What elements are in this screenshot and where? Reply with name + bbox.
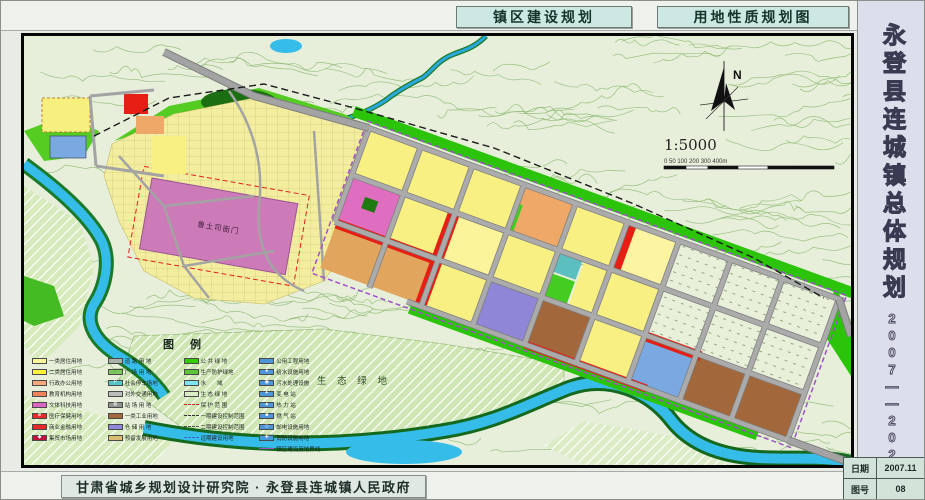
legend-item: 保 护 范 围 (184, 399, 257, 410)
legend-label: 远期建设用地 (201, 434, 234, 442)
legend-item: 道 路 用 地 (108, 355, 181, 366)
legend-item: 文体科技用地 (32, 399, 105, 410)
legend-symbol-icon: ■ (265, 413, 268, 418)
legend-label: 公 共 绿 地 (201, 357, 228, 365)
plan-sheet: 镇区建设规划 用地性质规划图 永登县连城镇总体规划 2007——2020 甘肃省… (0, 0, 925, 500)
legend-label: 文体科技用地 (49, 401, 82, 409)
legend-item: 一类居住用地 (32, 355, 105, 366)
legend-swatch (259, 358, 274, 364)
legend-item: 生产防护绿地 (184, 366, 257, 377)
legend-symbol-icon: ✦ (265, 391, 269, 396)
legend-item: ∷广 场 用 地 (108, 366, 181, 377)
legend-label: 社会停车场地 (125, 379, 158, 387)
legend-item: 二期建设控制范围 (184, 421, 257, 432)
scale-tick-labels: 0 50 100 200 300 400m (664, 159, 727, 165)
legend-symbol-icon: ● (265, 369, 268, 374)
legend-item: ◉污水处理设施 (259, 377, 332, 388)
legend-swatch (184, 380, 199, 386)
legend-label: 商业金融用地 (49, 423, 82, 431)
legend-label: 邮电设施用地 (276, 423, 309, 431)
legend-symbol-icon: ◆ (38, 435, 42, 440)
title-landuse-map: 用地性质规划图 (657, 6, 849, 28)
legend-swatch: P (108, 380, 123, 386)
legend-swatch (108, 358, 123, 364)
legend-label: 公用工程用地 (276, 357, 309, 365)
legend-symbol-icon: ▲ (264, 402, 269, 407)
legend-label: 站 场 用 地 (125, 401, 152, 409)
legend-label: 预留发展用地 (125, 434, 158, 442)
legend-columns: 一类居住用地二类居住用地行政办公用地教育机构用地文体科技用地⊕医疗保健用地商业金… (32, 355, 332, 454)
legend-label: 变 电 站 (276, 390, 296, 398)
title-right-text: 用地性质规划图 (694, 7, 813, 27)
legend-label: 医疗保健用地 (49, 412, 82, 420)
legend-item: ▲热 力 站 (259, 399, 332, 410)
legend-item: ◆集贸市场用地 (32, 432, 105, 443)
legend-swatch (259, 446, 274, 452)
legend-swatch (184, 391, 199, 397)
legend-item: 生 态 绿 地 (184, 388, 257, 399)
legend-item: 二类居住用地 (32, 366, 105, 377)
legend-item: 水 域 (184, 377, 257, 388)
title-construction-plan: 镇区建设规划 (456, 6, 632, 28)
sheet-label: 图号 (844, 479, 877, 500)
sidebar-title-bar: 永登县连城镇总体规划 2007——2020 (857, 1, 925, 500)
legend-label: 二类居住用地 (49, 368, 82, 376)
legend-swatch: ● (259, 369, 274, 375)
map-frame: 生 态 绿 地 (21, 33, 854, 468)
legend-swatch: ■ (259, 413, 274, 419)
legend-item: 一类工业用地 (108, 410, 181, 421)
legend-swatch (184, 435, 199, 441)
legend-swatch (108, 424, 123, 430)
legend-title: 图例 (32, 336, 332, 352)
plan-years-vertical: 2007——2020 (886, 311, 899, 481)
legend-swatch: ✚ (259, 435, 274, 441)
legend-label: 生 态 绿 地 (201, 390, 228, 398)
legend-label: 燃 气 站 (276, 412, 296, 420)
legend-label: 行政办公用地 (49, 379, 82, 387)
date-value: 2007.11 (877, 458, 925, 479)
legend-item: 教育机构用地 (32, 388, 105, 399)
legend-label: 广 场 用 地 (125, 368, 152, 376)
legend-label: 二期建设控制范围 (201, 423, 245, 431)
legend-item: 公用工程用地 (259, 355, 332, 366)
legend-label: 集贸市场用地 (49, 434, 82, 442)
legend-symbol-icon: ◇ (265, 424, 269, 429)
info-table: 日期 2007.11 图号 08 (843, 457, 924, 499)
legend-symbol-icon: ✚ (265, 435, 269, 440)
legend-label: 消防设施用地 (276, 434, 309, 442)
legend-label: 一类工业用地 (125, 412, 158, 420)
legend-symbol-icon: ⊕ (37, 413, 41, 418)
legend-swatch: ∷ (108, 369, 123, 375)
north-label: N (733, 68, 742, 82)
legend: 图例 一类居住用地二类居住用地行政办公用地教育机构用地文体科技用地⊕医疗保健用地… (32, 336, 332, 454)
legend-label: 生产防护绿地 (201, 368, 234, 376)
sheet-value: 08 (877, 479, 925, 500)
title-left-text: 镇区建设规划 (493, 7, 595, 27)
credit-box: 甘肃省城乡规划设计研究院 · 永登县连城镇人民政府 (61, 475, 426, 498)
legend-item: ✦变 电 站 (259, 388, 332, 399)
legend-item: 预留发展用地 (108, 432, 181, 443)
legend-swatch: ◉ (259, 380, 274, 386)
pond (270, 39, 302, 53)
legend-symbol-icon: ∷ (114, 369, 117, 374)
legend-swatch (32, 369, 47, 375)
legend-item: 商业金融用地 (32, 421, 105, 432)
legend-swatch: ◆ (32, 435, 47, 441)
legend-swatch (184, 369, 199, 375)
legend-item: 对外交通用地 (108, 388, 181, 399)
scale-text: 1:5000 (664, 136, 717, 154)
legend-label: 水 域 (201, 379, 223, 387)
legend-swatch: ◍ (108, 402, 123, 408)
legend-label: 给水设施用地 (276, 368, 309, 376)
legend-swatch (32, 358, 47, 364)
legend-label: 教育机构用地 (49, 390, 82, 398)
legend-label: 污水处理设施 (276, 379, 309, 387)
legend-label: 道 路 用 地 (125, 357, 152, 365)
legend-item: ⊕医疗保健用地 (32, 410, 105, 421)
legend-swatch: ✦ (259, 391, 274, 397)
legend-label: 保 护 范 围 (201, 401, 228, 409)
legend-item: 仓 储 用 地 (108, 421, 181, 432)
legend-swatch (184, 358, 199, 364)
legend-swatch (108, 435, 123, 441)
legend-item: 行政办公用地 (32, 377, 105, 388)
legend-swatch (108, 391, 123, 397)
legend-label: 热 力 站 (276, 401, 296, 409)
legend-item: 一期建设控制范围 (184, 410, 257, 421)
legend-item: ✚消防设施用地 (259, 432, 332, 443)
legend-symbol-icon: ◍ (113, 402, 117, 407)
legend-swatch: ⊕ (32, 413, 47, 419)
legend-swatch (184, 413, 199, 419)
legend-swatch (32, 391, 47, 397)
legend-label: 对外交通用地 (125, 390, 158, 398)
legend-label: 一期建设控制范围 (201, 412, 245, 420)
legend-swatch: ◇ (259, 424, 274, 430)
legend-item: ◇邮电设施用地 (259, 421, 332, 432)
legend-label: 仓 储 用 地 (125, 423, 152, 431)
legend-swatch (184, 402, 199, 408)
legend-symbol-icon: P (114, 380, 117, 385)
legend-item: ◍站 场 用 地 (108, 399, 181, 410)
legend-swatch (32, 380, 47, 386)
river-widening (346, 440, 462, 464)
legend-symbol-icon: ◉ (265, 380, 269, 385)
legend-item: 远期建设用地 (184, 432, 257, 443)
legend-item: 镇区建设用地界线 (259, 443, 332, 454)
legend-item: 公 共 绿 地 (184, 355, 257, 366)
credit-text: 甘肃省城乡规划设计研究院 · 永登县连城镇人民政府 (76, 477, 411, 496)
legend-item: ●给水设施用地 (259, 366, 332, 377)
date-label: 日期 (844, 458, 877, 479)
legend-label: 一类居住用地 (49, 357, 82, 365)
legend-swatch (32, 424, 47, 430)
plan-title-vertical: 永登县连城镇总体规划 (881, 23, 904, 303)
legend-item: ■燃 气 站 (259, 410, 332, 421)
legend-label: 镇区建设用地界线 (276, 445, 320, 453)
legend-item: P社会停车场地 (108, 377, 181, 388)
legend-swatch (32, 402, 47, 408)
legend-swatch (108, 413, 123, 419)
legend-swatch (184, 424, 199, 430)
legend-swatch: ▲ (259, 402, 274, 408)
